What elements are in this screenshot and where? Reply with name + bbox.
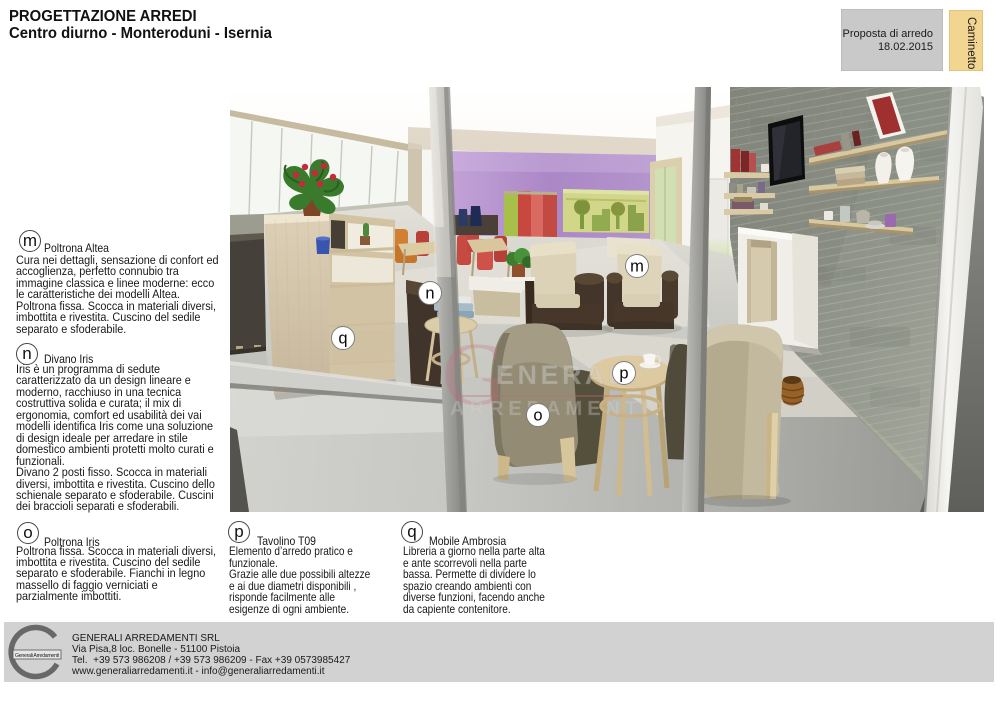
svg-text:q: q (338, 330, 347, 348)
svg-text:ARREDAMENTI: ARREDAMENTI (450, 398, 653, 420)
svg-text:p: p (619, 365, 628, 383)
svg-text:Generali Arredamenti: Generali Arredamenti (15, 653, 59, 659)
svg-text:m: m (630, 258, 644, 276)
svg-text:o: o (533, 407, 542, 425)
svg-text:n: n (425, 285, 434, 303)
